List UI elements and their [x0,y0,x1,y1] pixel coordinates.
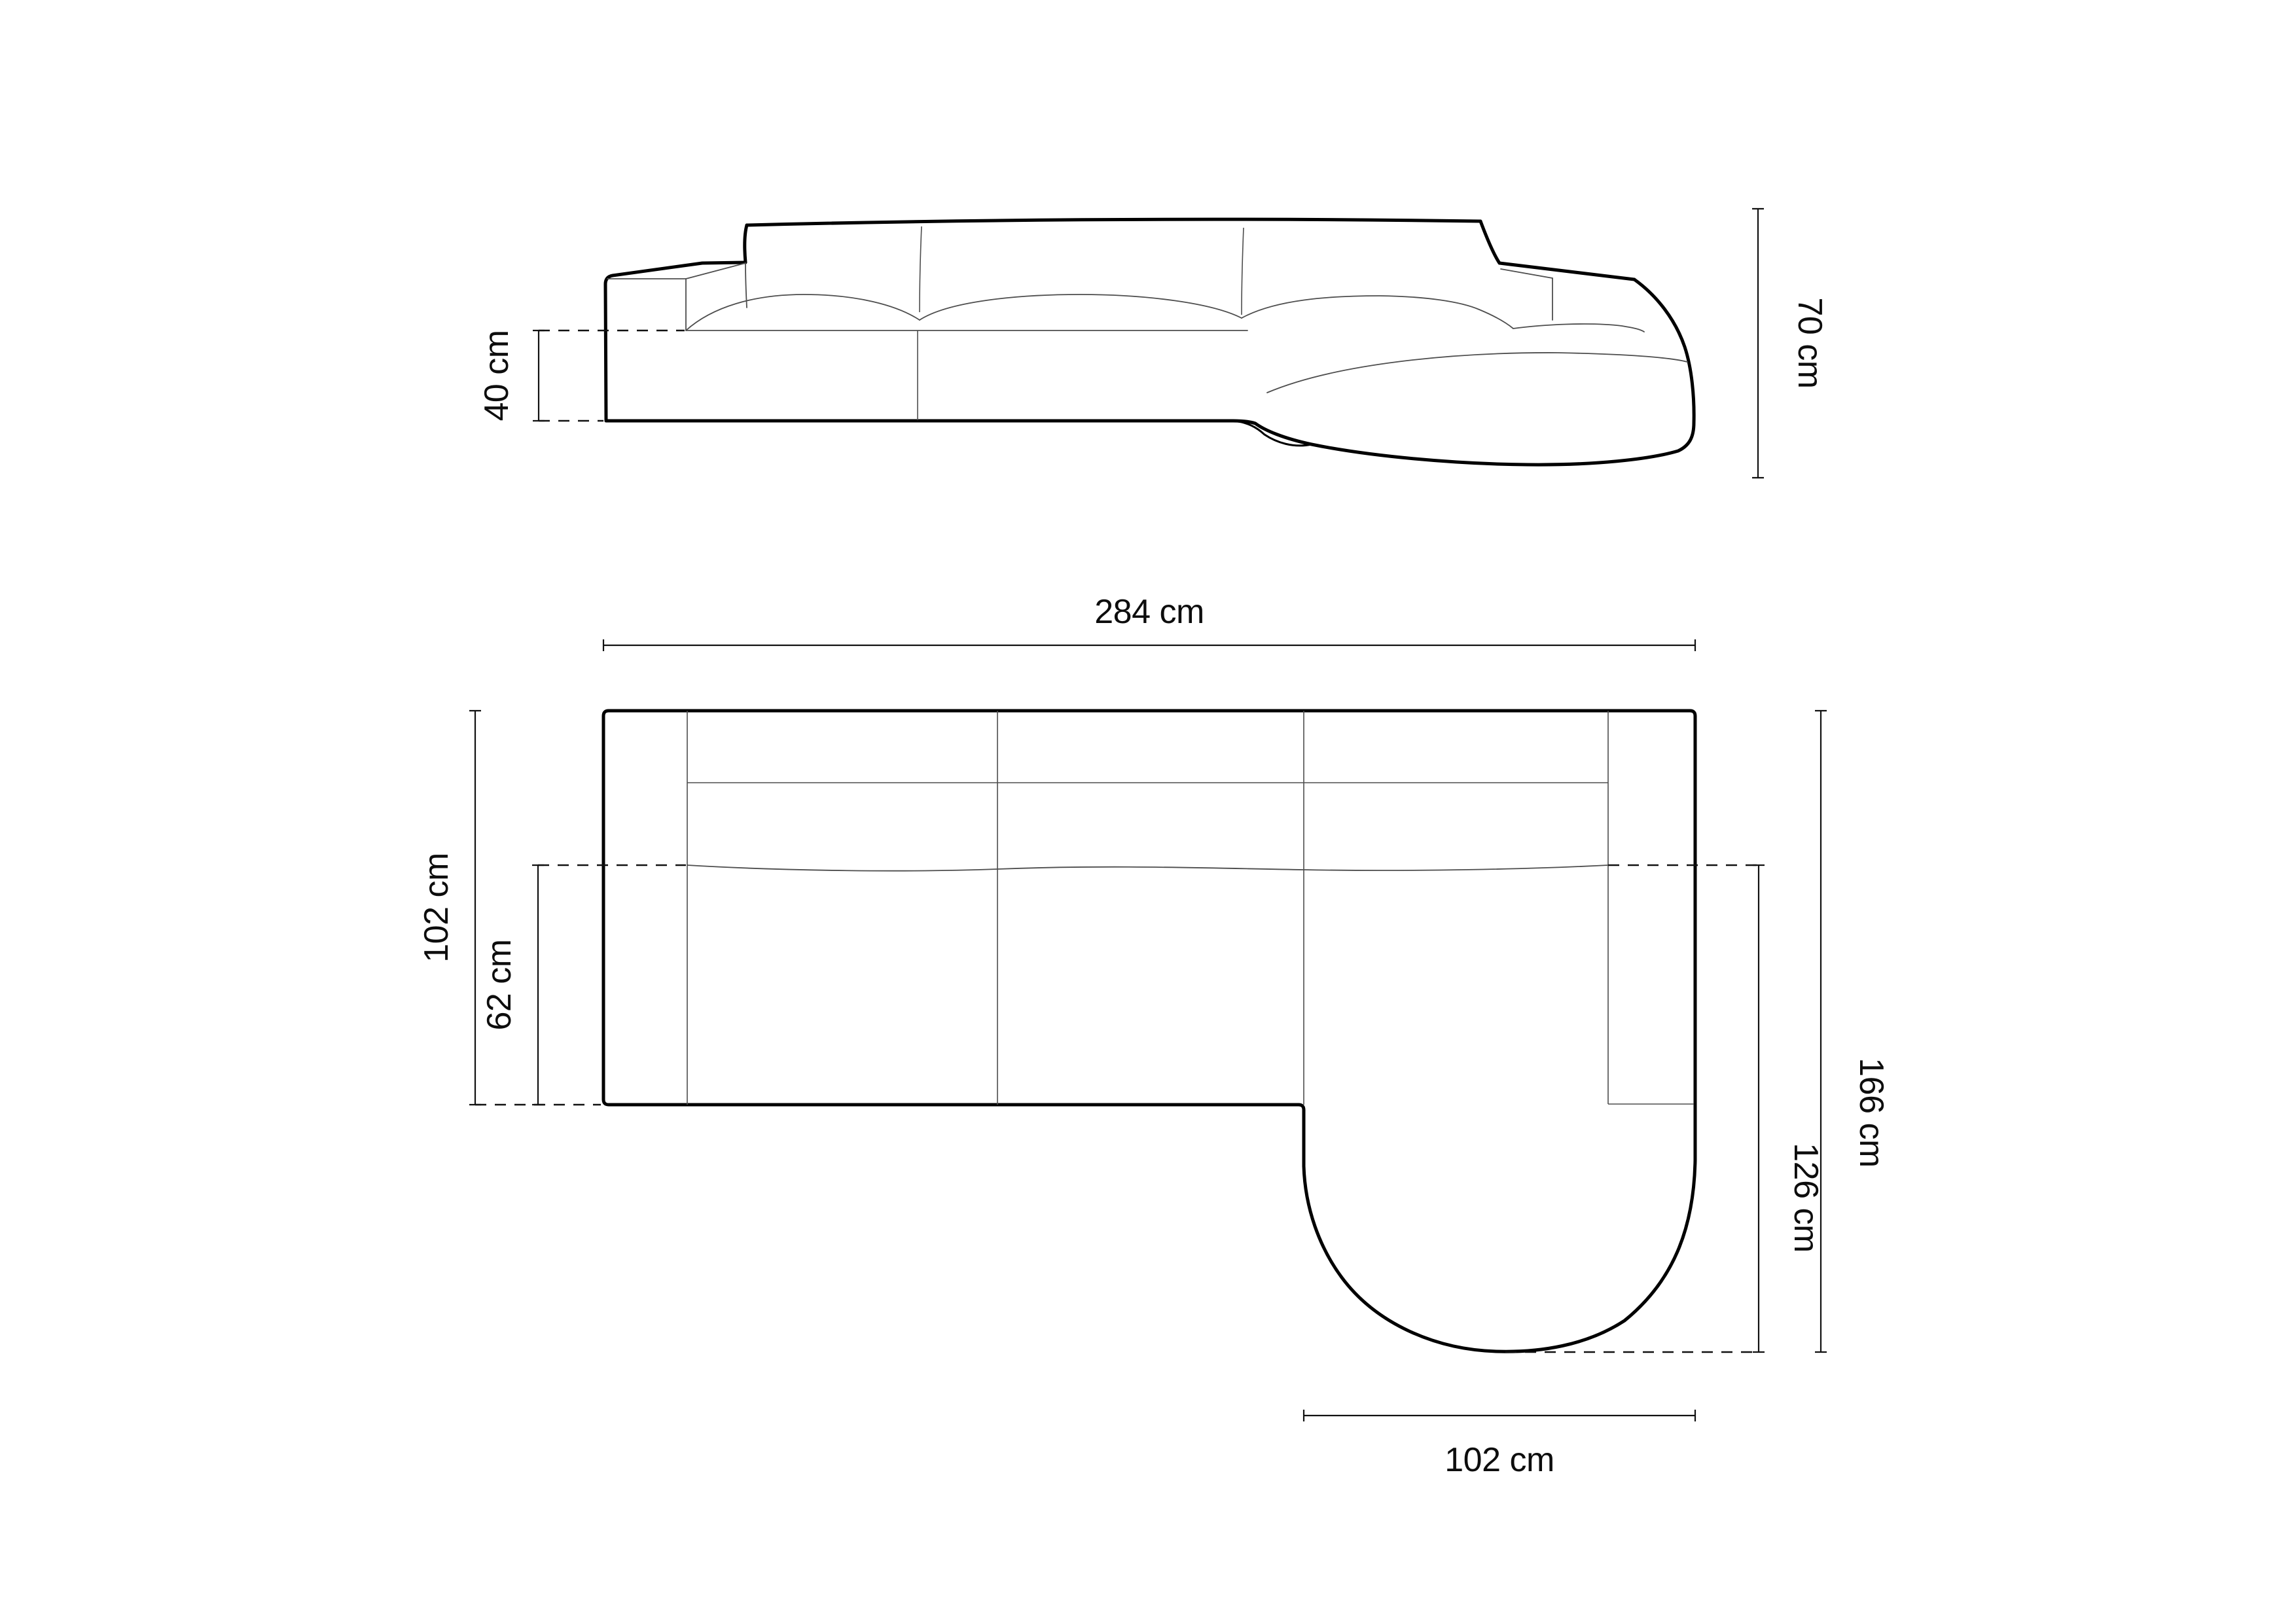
front-base-and-chaise-outline [606,279,1694,465]
dim-seat-depth: 62 cm [475,865,686,1105]
front-chaise-top-edge [1267,353,1687,393]
plan-cushion-front-wavy-line [687,865,1608,871]
plan-outline [603,711,1695,1351]
front-right-arm-top [1499,263,1634,279]
front-backrest-seam-1 [920,226,922,312]
seat-height-label: 40 cm [478,330,516,421]
canvas: 40 cm 70 cm 284 cm [0,0,2296,1623]
front-backrest-top [747,219,1480,225]
dim-overall-length: 166 cm [1815,711,1890,1352]
dim-chaise-length: 126 cm [1505,865,1825,1352]
front-view: 40 cm 70 cm [478,209,1829,478]
front-right-arm-near-edge [1501,269,1552,278]
dim-seat-height: 40 cm [478,330,685,421]
front-cushion-1-arc [686,294,920,330]
chaise-length-label: 126 cm [1787,1143,1825,1253]
overall-length-label: 166 cm [1852,1058,1890,1168]
overall-height-label: 70 cm [1791,297,1829,388]
front-left-arm-outline [605,262,745,421]
front-cushion-3-arc [1242,296,1644,332]
front-backrest-right-edge [1480,221,1499,263]
chaise-width-label: 102 cm [1444,1441,1554,1479]
plan-view: 284 cm 102 cm 62 cm 166 cm [418,593,1890,1479]
front-backrest-left-edge [745,225,747,262]
front-backrest-seam-2 [1242,228,1244,315]
dim-overall-height: 70 cm [1752,209,1829,478]
sofa-dimension-drawing: 40 cm 70 cm 284 cm [0,0,2296,1623]
dim-chaise-width: 102 cm [1304,1410,1695,1479]
overall-depth-label: 102 cm [418,853,456,963]
dim-overall-depth: 102 cm [418,711,481,1105]
overall-width-label: 284 cm [1094,593,1204,631]
dim-overall-width: 284 cm [603,593,1695,651]
seat-depth-label: 62 cm [480,939,518,1030]
front-cushion-2-arc [920,294,1242,320]
